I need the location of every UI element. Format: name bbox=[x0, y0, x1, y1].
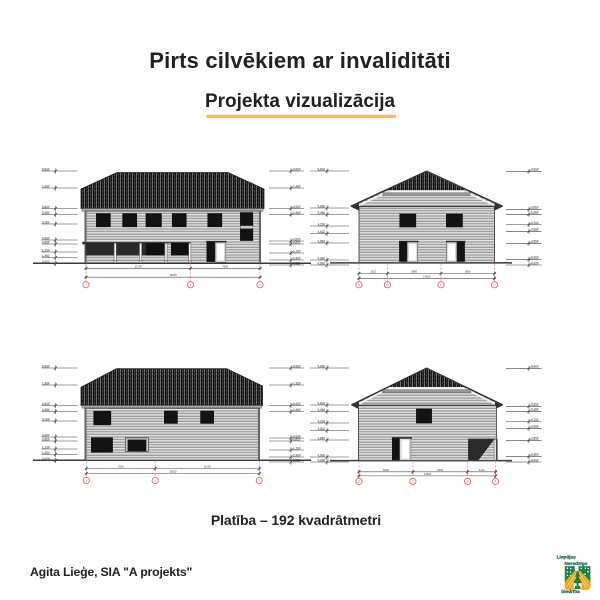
svg-text:B: B bbox=[386, 283, 388, 287]
svg-text:7000: 7000 bbox=[118, 465, 124, 469]
svg-text:7000: 7000 bbox=[222, 264, 228, 268]
svg-text:Projekta vizualizācija: Projekta vizualizācija bbox=[205, 91, 396, 112]
svg-text:7: 7 bbox=[258, 479, 260, 483]
svg-text:1: 1 bbox=[259, 283, 261, 287]
svg-text:Pirts cilvēkiem ar invaliditāt: Pirts cilvēkiem ar invaliditāti bbox=[149, 48, 451, 73]
svg-text:Agita Lieģe, SIA "A projekts": Agita Lieģe, SIA "A projekts" bbox=[30, 565, 192, 579]
svg-text:B: B bbox=[467, 480, 469, 484]
svg-text:4: 4 bbox=[154, 479, 156, 483]
svg-text:Neredzīgo: Neredzīgo bbox=[564, 561, 587, 567]
svg-text:1: 1 bbox=[85, 479, 87, 483]
svg-text:11200: 11200 bbox=[135, 264, 143, 268]
svg-text:4: 4 bbox=[190, 283, 192, 287]
svg-text:7: 7 bbox=[85, 283, 87, 287]
svg-text:11200: 11200 bbox=[204, 465, 212, 469]
svg-text:6000: 6000 bbox=[383, 468, 389, 472]
svg-text:14920: 14920 bbox=[424, 472, 432, 476]
svg-text:3110: 3110 bbox=[370, 270, 376, 274]
svg-text:18200: 18200 bbox=[169, 273, 177, 277]
svg-text:Platība – 192 kvadrātmetri: Platība – 192 kvadrātmetri bbox=[211, 512, 381, 528]
svg-text:3110: 3110 bbox=[479, 468, 485, 472]
svg-text:6000: 6000 bbox=[437, 468, 443, 472]
svg-text:5800: 5800 bbox=[465, 270, 471, 274]
svg-text:14920: 14920 bbox=[423, 274, 431, 278]
svg-text:5800: 5800 bbox=[411, 270, 417, 274]
svg-text:18200: 18200 bbox=[169, 470, 177, 474]
svg-text:Liepājas: Liepājas bbox=[557, 554, 577, 560]
svg-text:biedrība: biedrība bbox=[561, 589, 580, 595]
